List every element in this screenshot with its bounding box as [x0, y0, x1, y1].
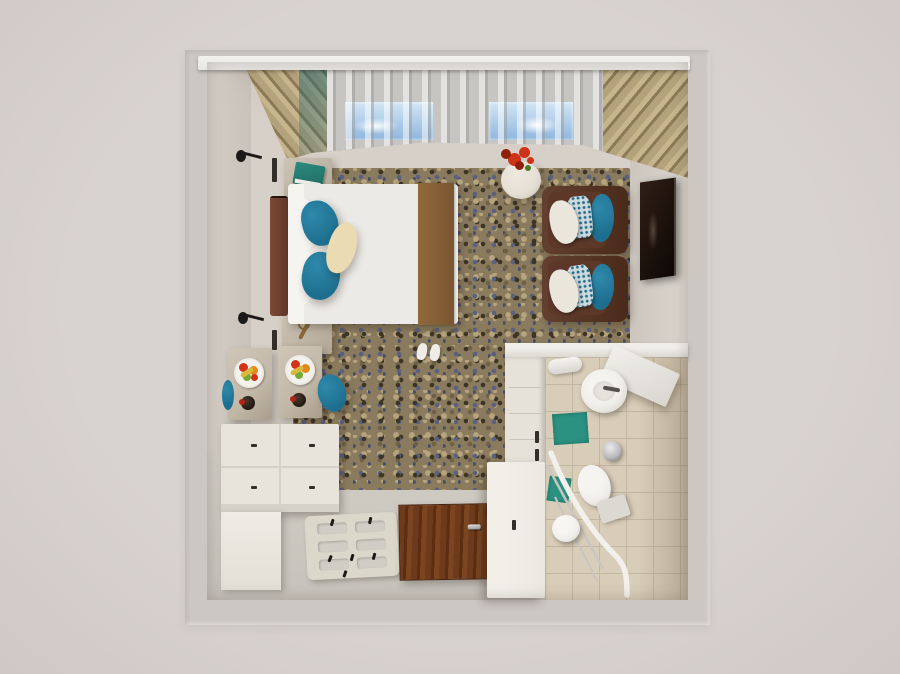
- shower-grab-rail: [545, 357, 688, 600]
- tv-screen: [640, 177, 676, 280]
- wall-lamp-icon: [238, 310, 264, 326]
- cloud: [353, 118, 399, 134]
- armchair: [542, 256, 628, 322]
- door-handle: [468, 524, 481, 529]
- wall-lamp-icon: [236, 148, 262, 164]
- dining-chair: [222, 380, 234, 410]
- curtain-pelmet: [198, 56, 690, 70]
- bed: [288, 184, 458, 324]
- slippers: [417, 341, 443, 363]
- wall-niche: [272, 158, 277, 182]
- chair-pillow-teal: [588, 193, 615, 243]
- bed-runner: [418, 183, 454, 325]
- closet: [505, 357, 545, 465]
- render-canvas: [0, 0, 900, 674]
- sky-window-left: [345, 102, 433, 140]
- dining-table: [228, 348, 272, 420]
- sky-window-right: [489, 102, 573, 140]
- sideboard: [221, 424, 339, 512]
- cloud: [515, 116, 559, 134]
- fruit-plate: [285, 355, 315, 385]
- sideboard-front-face: [221, 512, 281, 590]
- shower-stool: [552, 515, 580, 542]
- wine-bottle: [292, 393, 306, 407]
- luggage-rack: [304, 512, 399, 581]
- armchair: [542, 186, 628, 254]
- wine-bottle: [241, 396, 255, 410]
- entry-door: [398, 503, 488, 581]
- storage-bench: [487, 462, 545, 598]
- headboard: [270, 196, 288, 316]
- fruit-plate: [234, 358, 264, 388]
- flower-vase: [498, 143, 542, 179]
- dining-table: [278, 346, 322, 418]
- wall-niche: [272, 330, 277, 350]
